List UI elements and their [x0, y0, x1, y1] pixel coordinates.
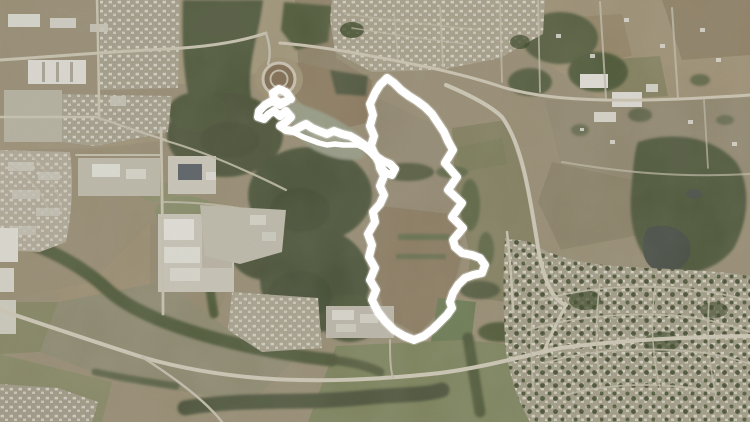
satellite-map-canvas — [0, 0, 750, 422]
satellite-map — [0, 0, 750, 422]
